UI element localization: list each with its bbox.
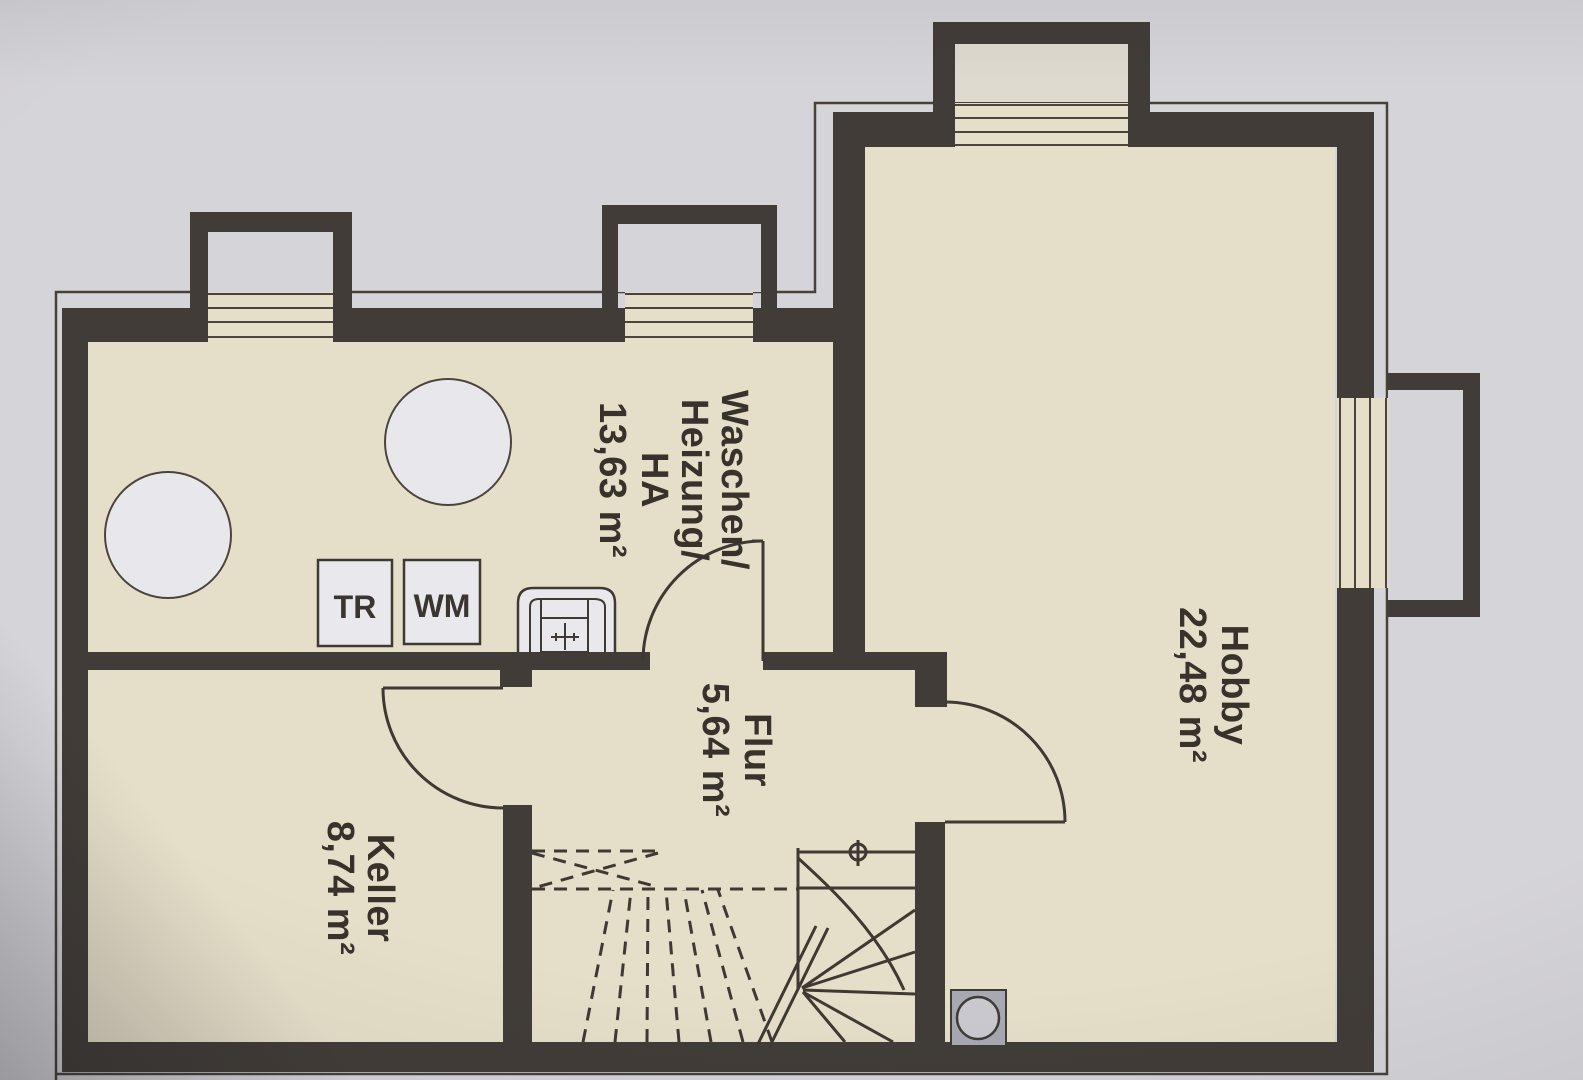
wall-waschen-bottom-1 (62, 652, 650, 670)
wall-hobby-right-2 (1337, 588, 1374, 1072)
waschen-label-line1: Waschen/ (713, 390, 755, 570)
dryer-symbol: TR (318, 560, 392, 646)
flur-area-label: 5,64 m² (694, 683, 736, 817)
utility-sink-symbol (518, 588, 615, 652)
lightwell-hobby-top (933, 22, 1150, 112)
hobby-name-label: Hobby (1213, 625, 1255, 746)
window-hobby-right (1337, 398, 1388, 588)
flur-name-label: Flur (736, 713, 778, 787)
wall-waschen-top-1 (62, 308, 208, 342)
waschen-label-line2: Heizung/ (673, 399, 715, 561)
wall-hobby-top-1 (833, 112, 955, 147)
wall-outer-left (62, 308, 88, 1072)
window-waschen-2 (625, 292, 753, 340)
lightwell-hobby-right (1388, 373, 1480, 617)
wall-hobby-door-stub (915, 652, 947, 707)
hobby-area-label: 22,48 m² (1171, 607, 1213, 763)
washing-machine-symbol: WM (404, 560, 480, 644)
floor-plan-drawing: TR WM Waschen/ Heizung/ (0, 0, 1583, 1080)
wall-flur-hobby (915, 822, 945, 1042)
wall-waschen-top-2 (333, 308, 625, 342)
wall-keller-flur (503, 805, 532, 1042)
wall-keller-door-stub (500, 652, 532, 687)
wall-outer-bottom (62, 1042, 1374, 1072)
hobby-room-label: Hobby 22,48 m² (1171, 607, 1255, 763)
tank-symbol-1 (105, 472, 231, 598)
keller-room-label: Keller 8,74 m² (319, 821, 401, 955)
sump-pump-symbol (951, 990, 1006, 1046)
window-hobby-top (955, 103, 1128, 147)
keller-name-label: Keller (359, 834, 401, 943)
floor-plan-photo: TR WM Waschen/ Heizung/ (0, 0, 1583, 1080)
keller-area-label: 8,74 m² (319, 821, 361, 955)
washing-machine-label: WM (414, 588, 471, 624)
window-waschen-1 (208, 292, 333, 340)
wall-hobby-right-1 (1337, 112, 1374, 398)
waschen-label-line3: HA (633, 452, 675, 508)
wall-hobby-left (833, 112, 865, 670)
waschen-area-label: 13,63 m² (591, 402, 633, 558)
dryer-label: TR (334, 589, 377, 625)
tank-symbol-2 (385, 379, 511, 505)
